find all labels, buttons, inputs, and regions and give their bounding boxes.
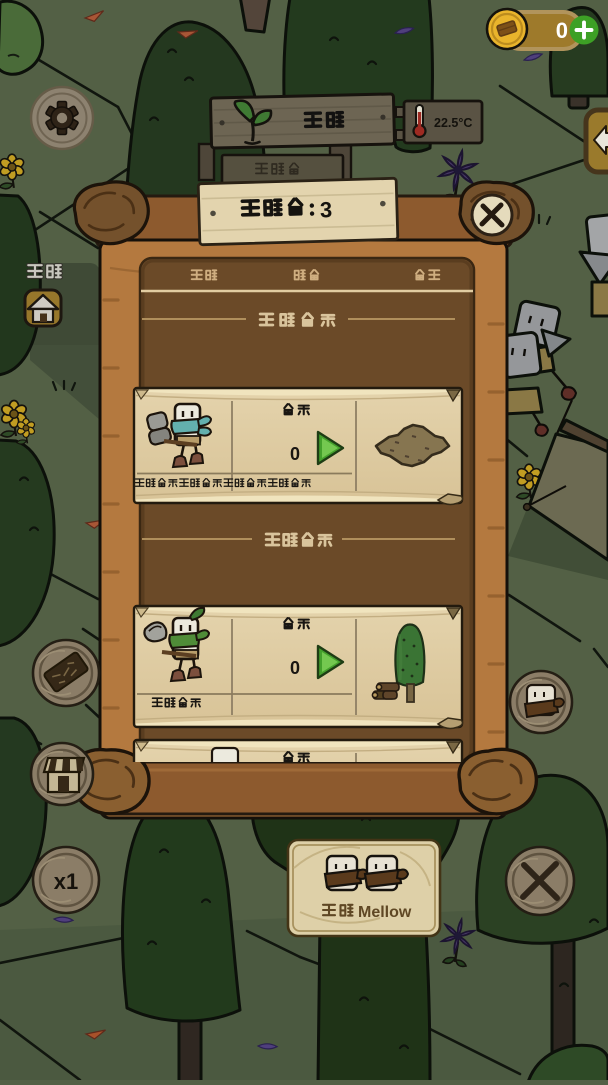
svg-text:0: 0 <box>290 658 300 678</box>
svg-text:0: 0 <box>290 444 300 464</box>
svg-text:0: 0 <box>556 18 568 43</box>
svg-text:Mellow: Mellow <box>358 904 412 921</box>
svg-text:3: 3 <box>320 197 333 222</box>
svg-text:22.5°C: 22.5°C <box>434 116 472 130</box>
svg-text:x1: x1 <box>54 869 78 894</box>
